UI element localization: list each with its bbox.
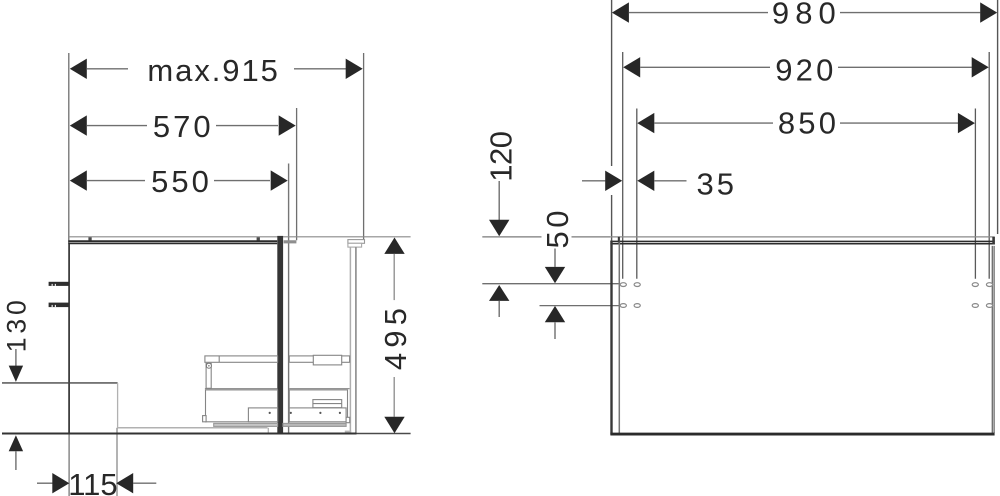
svg-text:980: 980	[772, 0, 842, 31]
svg-text:130: 130	[1, 296, 31, 352]
svg-text:115: 115	[68, 467, 117, 496]
svg-text:550: 550	[151, 164, 212, 199]
svg-text:120: 120	[484, 131, 519, 181]
svg-text:570: 570	[153, 109, 214, 144]
svg-text:850: 850	[778, 106, 839, 141]
svg-text:35: 35	[697, 166, 737, 201]
svg-text:920: 920	[775, 53, 836, 88]
svg-text:50: 50	[540, 207, 575, 248]
svg-text:495: 495	[378, 303, 413, 370]
svg-text:max.915: max.915	[147, 53, 279, 88]
